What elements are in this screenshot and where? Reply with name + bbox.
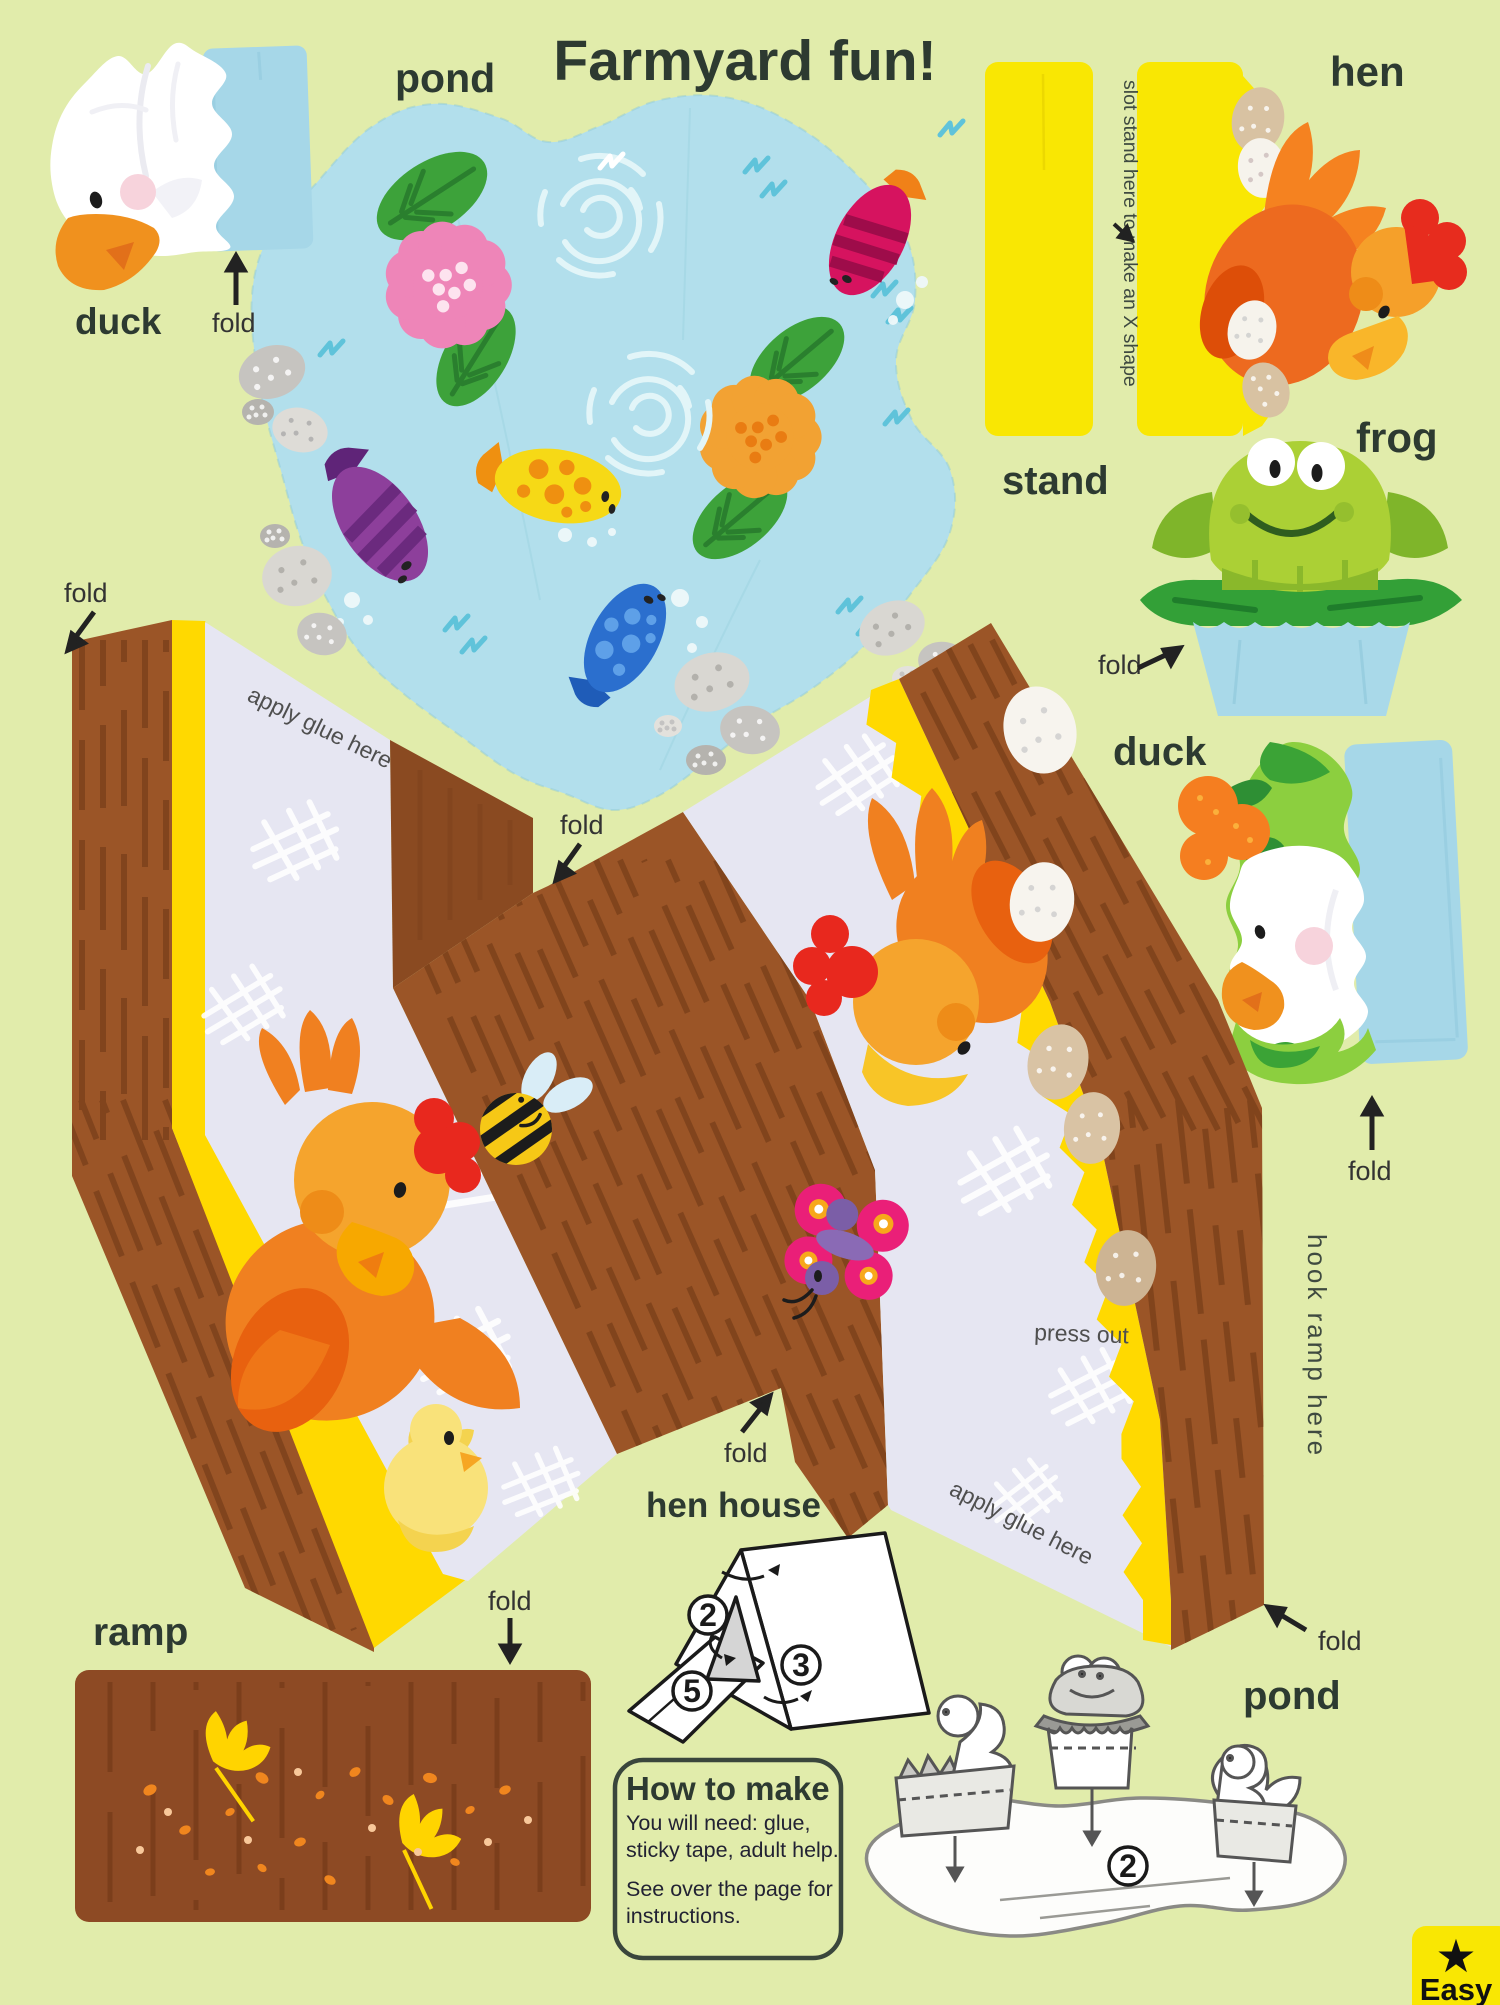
svg-text:frog: frog xyxy=(1356,414,1438,461)
svg-text:pond: pond xyxy=(1243,1674,1341,1718)
svg-text:Easy: Easy xyxy=(1420,1972,1493,2005)
svg-text:fold: fold xyxy=(724,1438,768,1468)
svg-text:You will need: glue,: You will need: glue, xyxy=(626,1811,810,1835)
svg-text:How to make: How to make xyxy=(626,1770,830,1807)
svg-text:Farmyard fun!: Farmyard fun! xyxy=(553,29,936,93)
svg-text:fold: fold xyxy=(560,810,604,840)
svg-text:duck: duck xyxy=(75,301,162,342)
svg-text:hen house: hen house xyxy=(646,1486,821,1525)
svg-text:pond: pond xyxy=(395,55,495,101)
svg-text:fold: fold xyxy=(1348,1156,1392,1186)
svg-text:hook ramp here: hook ramp here xyxy=(1302,1234,1332,1458)
svg-text:3: 3 xyxy=(792,1647,810,1683)
svg-text:hen: hen xyxy=(1330,48,1405,95)
svg-text:fold: fold xyxy=(212,308,256,338)
svg-text:instructions.: instructions. xyxy=(626,1904,741,1928)
svg-text:2: 2 xyxy=(1119,1848,1137,1884)
svg-text:fold: fold xyxy=(1098,650,1142,680)
svg-text:See over the page for: See over the page for xyxy=(626,1877,833,1901)
svg-text:ramp: ramp xyxy=(93,1611,188,1654)
svg-text:press out: press out xyxy=(1034,1319,1130,1348)
svg-text:2: 2 xyxy=(699,1597,717,1633)
svg-text:fold: fold xyxy=(488,1586,532,1616)
svg-text:stand: stand xyxy=(1002,459,1109,503)
svg-text:fold: fold xyxy=(1318,1626,1362,1656)
svg-text:fold: fold xyxy=(64,578,108,608)
svg-text:5: 5 xyxy=(683,1673,701,1709)
svg-text:duck: duck xyxy=(1113,730,1207,774)
svg-text:sticky tape, adult help.: sticky tape, adult help. xyxy=(626,1838,839,1862)
